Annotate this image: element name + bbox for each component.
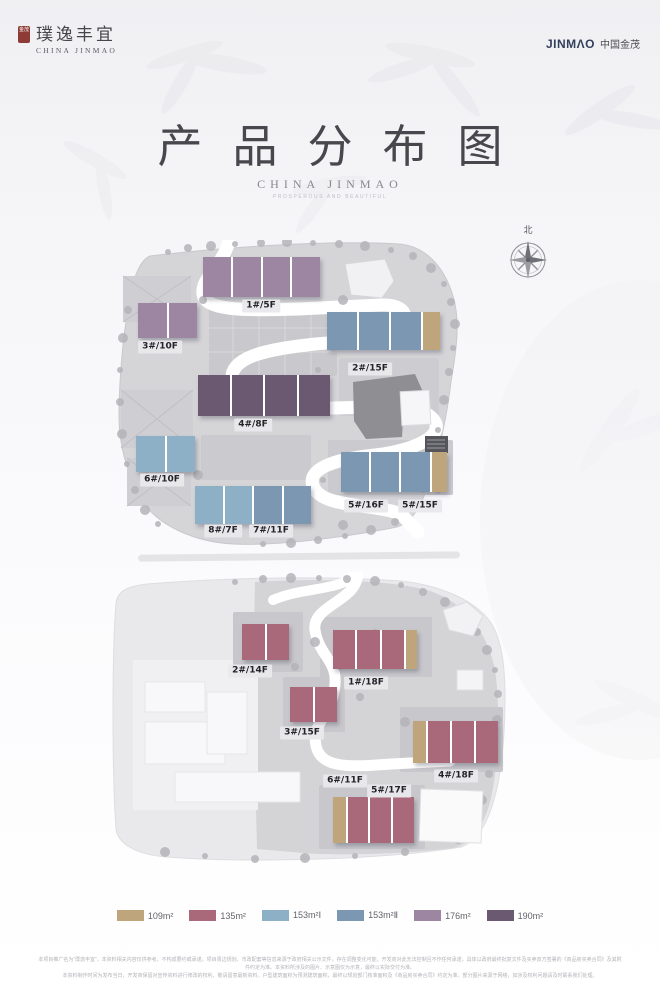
building-unit bbox=[382, 630, 404, 669]
page-subtitle: CHINA JINMAO bbox=[0, 177, 660, 192]
building-block bbox=[341, 452, 447, 492]
tree-icon bbox=[165, 249, 171, 255]
building-label: 3#/15F bbox=[280, 727, 324, 740]
building-unit bbox=[232, 375, 264, 416]
tree-icon bbox=[419, 588, 427, 596]
tree-icon bbox=[259, 575, 267, 583]
tree-icon bbox=[398, 582, 404, 588]
building-label: 2#/15F bbox=[348, 363, 392, 376]
compass-rose-icon bbox=[505, 237, 551, 283]
tree-icon bbox=[117, 367, 123, 373]
building-unit bbox=[406, 630, 417, 669]
building-unit bbox=[371, 452, 399, 492]
legend-label: 190m² bbox=[518, 911, 544, 921]
building-unit bbox=[315, 687, 338, 722]
jinmao-logo: JINMΛO bbox=[546, 37, 595, 51]
legend-item: 109m² bbox=[117, 910, 174, 921]
tree-icon bbox=[338, 295, 348, 305]
tree-icon bbox=[400, 717, 410, 727]
building-label: 6#/10F bbox=[140, 474, 184, 487]
tree-icon bbox=[426, 263, 436, 273]
building-label: 8#/7F bbox=[204, 525, 242, 538]
legend-swatch bbox=[337, 910, 364, 921]
building-block bbox=[136, 436, 195, 472]
tree-icon bbox=[409, 252, 417, 260]
building-unit bbox=[413, 721, 426, 763]
building-label: 4#/18F bbox=[434, 770, 478, 783]
legend-item: 190m² bbox=[487, 910, 544, 921]
building-label: 1#/5F bbox=[242, 300, 280, 313]
tree-icon bbox=[343, 575, 351, 583]
site-map-south: 2#/14F1#/18F3#/15F4#/18F6#/11F5#/17F bbox=[105, 572, 510, 877]
building-unit bbox=[423, 312, 440, 350]
tree-icon bbox=[352, 853, 358, 859]
legend-label: 153m²Ⅱ bbox=[368, 910, 398, 921]
legend: 109m²135m²153m²Ⅰ153m²Ⅱ176m²190m² bbox=[0, 910, 660, 921]
tree-icon bbox=[445, 368, 453, 376]
building-unit bbox=[169, 303, 198, 338]
disclaimer-line-1: 本项目推广名为“璞逸丰宜”，本资料相关内容仅供参考，不构成要约或承诺。项目周边规… bbox=[38, 956, 622, 972]
tree-icon bbox=[184, 244, 192, 252]
building-unit bbox=[476, 721, 498, 763]
tree-icon bbox=[485, 770, 493, 778]
tree-icon bbox=[291, 663, 299, 671]
building-label: 4#/8F bbox=[234, 419, 272, 432]
tree-icon bbox=[232, 579, 238, 585]
legend-label: 135m² bbox=[220, 911, 246, 921]
tree-icon bbox=[199, 296, 207, 304]
building-label: 1#/18F bbox=[344, 677, 388, 690]
page-title: 产品分布图 bbox=[0, 110, 660, 175]
building-unit bbox=[267, 624, 290, 660]
legend-label: 176m² bbox=[445, 911, 471, 921]
disclaimer-line-2: 本资料制作时间为发布当日，开发商保留对宣传资料进行修改的权利，敬请留意最新资料。… bbox=[38, 972, 622, 980]
building-unit bbox=[391, 312, 421, 350]
jinmao-cn-label: 中国金茂 bbox=[600, 36, 640, 51]
tree-icon bbox=[447, 298, 455, 306]
tree-icon bbox=[450, 345, 456, 351]
building-unit bbox=[290, 687, 313, 722]
site-map-north: 1#/5F3#/10F2#/15F4#/8F6#/10F8#/7F7#/11F5… bbox=[113, 240, 468, 565]
tree-icon bbox=[388, 247, 394, 253]
tree-icon bbox=[360, 241, 370, 251]
tree-icon bbox=[316, 575, 322, 581]
legend-item: 135m² bbox=[189, 910, 246, 921]
tree-icon bbox=[124, 461, 130, 467]
building-label: 3#/10F bbox=[138, 341, 182, 354]
brand-left: 金茂 璞逸丰宜 CHINA JINMAO bbox=[18, 26, 117, 55]
building-block bbox=[413, 721, 498, 763]
compass: 北 bbox=[505, 223, 551, 288]
tree-icon bbox=[439, 395, 449, 405]
tree-icon bbox=[310, 240, 316, 246]
building-unit bbox=[401, 452, 429, 492]
building-unit bbox=[198, 375, 230, 416]
tree-icon bbox=[232, 241, 238, 247]
building-block bbox=[198, 375, 330, 416]
tree-icon bbox=[450, 319, 460, 329]
tree-icon bbox=[116, 398, 124, 406]
building-block bbox=[203, 257, 320, 297]
tree-icon bbox=[320, 477, 326, 483]
tree-icon bbox=[492, 667, 498, 673]
building-block bbox=[327, 312, 440, 350]
legend-item: 153m²Ⅰ bbox=[262, 910, 321, 921]
building-unit bbox=[292, 257, 320, 297]
building-unit bbox=[333, 797, 346, 843]
building-unit bbox=[233, 257, 261, 297]
building-unit bbox=[167, 436, 196, 472]
building-unit bbox=[284, 486, 312, 524]
building-block bbox=[242, 624, 289, 660]
tree-icon bbox=[251, 855, 259, 863]
legend-item: 153m²Ⅱ bbox=[337, 910, 398, 921]
tree-icon bbox=[160, 847, 170, 857]
tree-icon bbox=[117, 429, 127, 439]
building-block bbox=[333, 630, 417, 669]
tree-icon bbox=[202, 853, 208, 859]
tree-icon bbox=[260, 541, 266, 547]
tree-icon bbox=[338, 520, 348, 530]
legend-swatch bbox=[117, 910, 144, 921]
building-unit bbox=[348, 797, 369, 843]
legend-swatch bbox=[414, 910, 441, 921]
tree-icon bbox=[435, 427, 441, 433]
tree-icon bbox=[155, 521, 161, 527]
building-block bbox=[195, 486, 311, 524]
legend-swatch bbox=[487, 910, 514, 921]
building-unit bbox=[242, 624, 265, 660]
legend-swatch bbox=[262, 910, 289, 921]
building-unit bbox=[428, 721, 450, 763]
building-unit bbox=[357, 630, 379, 669]
building-unit bbox=[393, 797, 414, 843]
tree-icon bbox=[356, 693, 364, 701]
building-unit bbox=[341, 452, 369, 492]
building-unit bbox=[195, 486, 223, 524]
building-unit bbox=[333, 630, 355, 669]
building-unit bbox=[263, 257, 291, 297]
legend-item: 176m² bbox=[414, 910, 471, 921]
tree-icon bbox=[391, 518, 399, 526]
building-block bbox=[138, 303, 197, 338]
tree-icon bbox=[124, 306, 132, 314]
building-unit bbox=[254, 486, 282, 524]
building-block bbox=[290, 687, 337, 722]
building-unit bbox=[327, 312, 357, 350]
tree-icon bbox=[286, 538, 296, 548]
tree-icon bbox=[310, 637, 320, 647]
brand-name: 璞逸丰宜 bbox=[36, 26, 117, 44]
building-unit bbox=[359, 312, 389, 350]
building-label: 6#/11F bbox=[323, 775, 367, 788]
tree-icon bbox=[140, 505, 150, 515]
tree-icon bbox=[494, 690, 502, 698]
building-label: 2#/14F bbox=[228, 665, 272, 678]
tree-icon bbox=[342, 533, 348, 539]
building-unit bbox=[452, 721, 474, 763]
tree-icon bbox=[286, 573, 296, 583]
legend-label: 109m² bbox=[148, 911, 174, 921]
legend-label: 153m²Ⅰ bbox=[293, 910, 321, 921]
tree-icon bbox=[370, 576, 380, 586]
tree-icon bbox=[401, 848, 409, 856]
building-unit bbox=[432, 452, 448, 492]
poster-page: 金茂 璞逸丰宜 CHINA JINMAO JINMΛO 中国金茂 产品分布图 C… bbox=[0, 0, 660, 989]
brand-subtitle: CHINA JINMAO bbox=[36, 46, 117, 55]
brand-right: JINMΛO 中国金茂 bbox=[546, 36, 640, 51]
tree-icon bbox=[335, 240, 343, 248]
tree-icon bbox=[131, 486, 139, 494]
tree-icon bbox=[300, 853, 310, 863]
tree-icon bbox=[441, 281, 447, 287]
tree-icon bbox=[366, 525, 376, 535]
tree-icon bbox=[315, 367, 321, 373]
disclaimer: 本项目推广名为“璞逸丰宜”，本资料相关内容仅供参考，不构成要约或承诺。项目周边规… bbox=[38, 956, 622, 980]
tree-icon bbox=[118, 333, 128, 343]
building-label: 5#/16F bbox=[344, 500, 388, 513]
building-block bbox=[333, 797, 414, 843]
page-tagline: PROSPEROUS AND BEAUTIFUL bbox=[0, 194, 660, 200]
tree-icon bbox=[440, 597, 450, 607]
building-unit bbox=[225, 486, 253, 524]
tree-icon bbox=[206, 241, 216, 251]
building-unit bbox=[370, 797, 391, 843]
building-label: 5#/17F bbox=[367, 785, 411, 798]
building-unit bbox=[136, 436, 165, 472]
tree-icon bbox=[482, 645, 492, 655]
building-unit bbox=[299, 375, 331, 416]
building-unit bbox=[138, 303, 167, 338]
brand-seal-icon: 金茂 bbox=[18, 26, 30, 43]
building-unit bbox=[203, 257, 231, 297]
building-label: 5#/15F bbox=[398, 500, 442, 513]
building-label: 7#/11F bbox=[249, 525, 293, 538]
building-unit bbox=[265, 375, 297, 416]
legend-swatch bbox=[189, 910, 216, 921]
tree-icon bbox=[314, 536, 322, 544]
compass-north-label: 北 bbox=[505, 223, 551, 236]
